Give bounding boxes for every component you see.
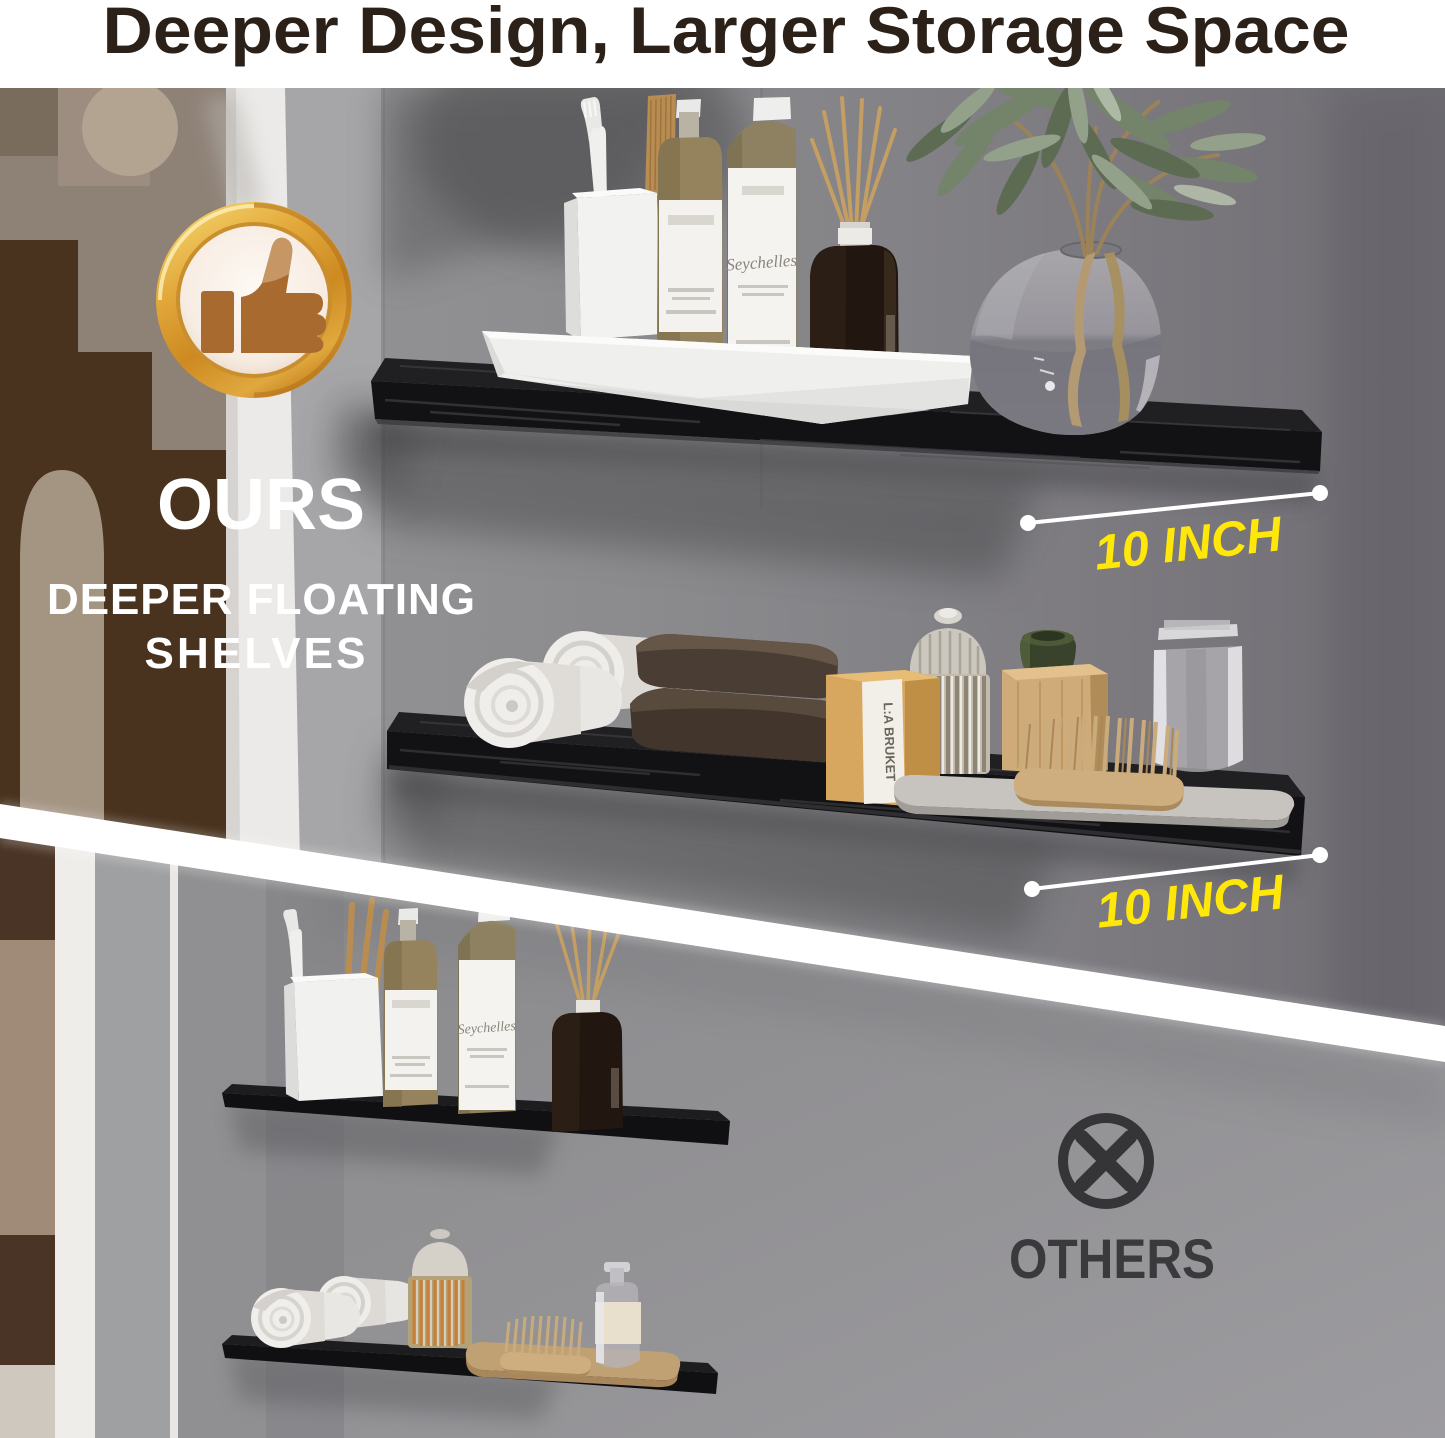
svg-text:OURS: OURS: [157, 465, 365, 545]
svg-text:L:A BRUKET: L:A BRUKET: [881, 702, 899, 781]
svg-text:Deeper Design, Larger Storage: Deeper Design, Larger Storage Space: [103, 0, 1350, 67]
svg-text:SHELVES: SHELVES: [145, 629, 366, 678]
svg-text:OTHERS: OTHERS: [1009, 1227, 1215, 1290]
svg-text:DEEPER FLOATING: DEEPER FLOATING: [47, 575, 475, 624]
